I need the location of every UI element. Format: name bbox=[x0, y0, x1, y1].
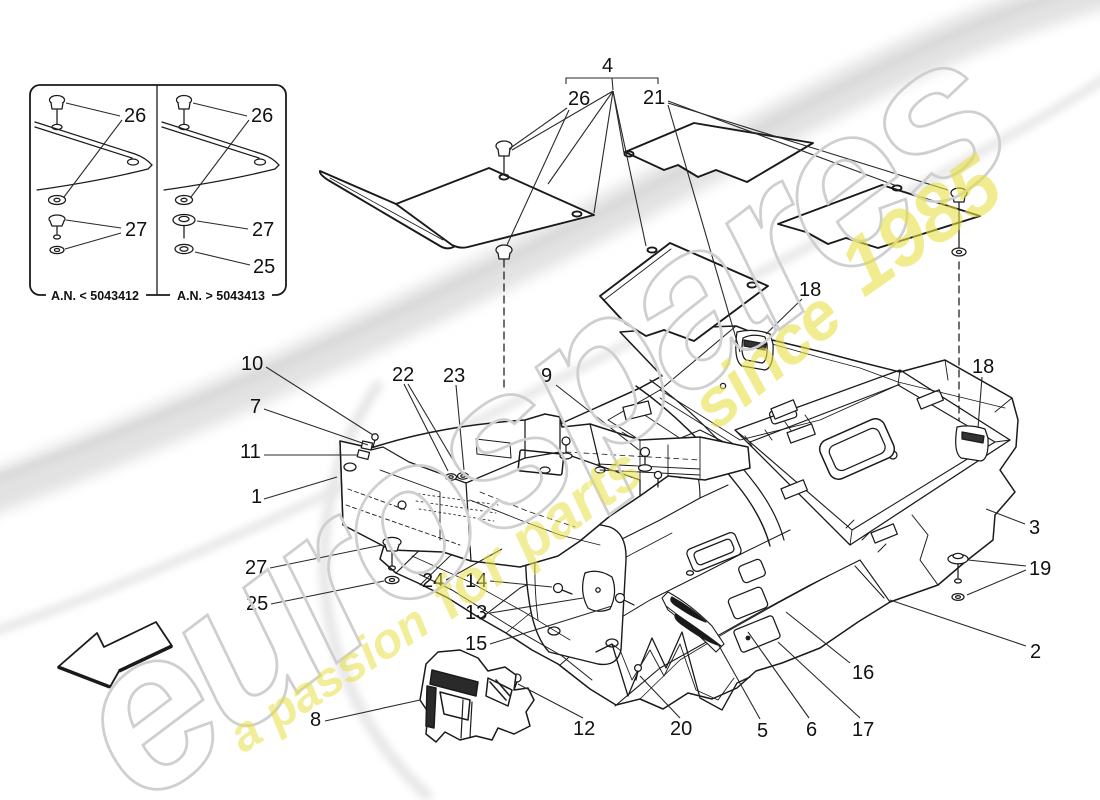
svg-text:18: 18 bbox=[972, 356, 994, 378]
svg-text:19: 19 bbox=[1029, 558, 1051, 580]
svg-text:6: 6 bbox=[806, 719, 817, 741]
svg-text:3: 3 bbox=[1029, 517, 1040, 539]
svg-text:4: 4 bbox=[602, 55, 613, 77]
svg-text:26: 26 bbox=[124, 105, 146, 127]
svg-text:16: 16 bbox=[852, 662, 874, 684]
svg-text:26: 26 bbox=[568, 88, 590, 110]
svg-text:17: 17 bbox=[852, 719, 874, 741]
svg-text:26: 26 bbox=[251, 105, 273, 127]
svg-text:25: 25 bbox=[253, 256, 275, 278]
svg-text:A.N. > 5043413: A.N. > 5043413 bbox=[177, 289, 265, 303]
svg-text:12: 12 bbox=[573, 718, 595, 740]
svg-text:27: 27 bbox=[252, 219, 274, 241]
svg-text:A.N. < 5043412: A.N. < 5043412 bbox=[51, 289, 139, 303]
svg-text:27: 27 bbox=[125, 219, 147, 241]
svg-text:2: 2 bbox=[1030, 641, 1041, 663]
svg-text:10: 10 bbox=[241, 353, 263, 375]
svg-text:15: 15 bbox=[465, 633, 487, 655]
svg-text:21: 21 bbox=[643, 87, 665, 109]
svg-text:5: 5 bbox=[757, 720, 768, 742]
svg-text:20: 20 bbox=[670, 718, 692, 740]
svg-text:7: 7 bbox=[250, 396, 261, 418]
svg-text:11: 11 bbox=[240, 441, 261, 463]
